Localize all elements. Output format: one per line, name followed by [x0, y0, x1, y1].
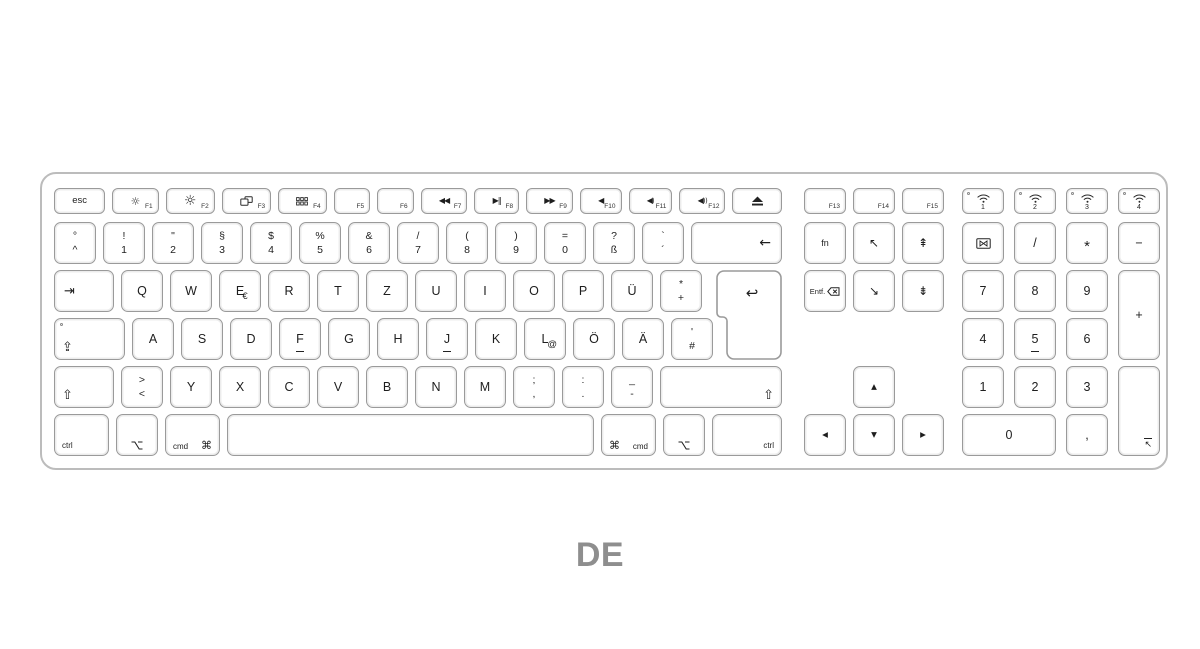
key-f13[interactable]: F13 [804, 188, 846, 214]
key-legend: D [246, 333, 255, 346]
key-caps-lock[interactable]: ⇪ [54, 318, 125, 360]
key-legend: Entf. [810, 287, 825, 296]
key-m[interactable]: M [464, 366, 506, 408]
key-num-3[interactable]: 3 [1066, 366, 1108, 408]
top-letter-row: ⇥QWE€RTZUIOPÜ*+ [54, 270, 782, 312]
key-right-ctrl[interactable]: ctrl [712, 414, 782, 456]
numpad-enter-icon: ↖ [1144, 438, 1152, 450]
key-a[interactable]: A [132, 318, 174, 360]
fkey-label: F12 [708, 203, 719, 210]
key-legend: X [236, 381, 244, 394]
key-legend: ;, [533, 375, 536, 399]
option-icon [678, 441, 690, 450]
key-end[interactable]: ↘ [853, 270, 895, 312]
key-f4[interactable]: F4 [278, 188, 326, 214]
key-num-1[interactable]: 1 [962, 366, 1004, 408]
key-legend: `´ [661, 231, 665, 255]
key-y[interactable]: Y [170, 366, 212, 408]
home-icon: ↖ [869, 237, 879, 249]
num-clear-icon [976, 238, 991, 249]
key-forward-delete[interactable]: Entf. [804, 270, 846, 312]
key-arrow-up[interactable]: ▲ [853, 366, 895, 408]
homing-bar [296, 351, 304, 352]
channel-number: 3 [1085, 204, 1089, 211]
delete-forward-icon [827, 287, 840, 296]
channel-number: 4 [1137, 204, 1141, 211]
key-z[interactable]: Z [366, 270, 408, 312]
key-legend: − [1135, 237, 1142, 250]
key-num-plus[interactable]: + [1118, 270, 1160, 360]
fkey-label: F8 [505, 203, 513, 210]
key-fn[interactable]: fn [804, 222, 846, 264]
fkey-label: F9 [559, 203, 567, 210]
key-legend: 5 [1032, 333, 1039, 346]
main-key-block: esc☼F1☼F2F3F4F5F6◀◀F7▶‖F8▶▶F9◀F10◀)F11◀)… [54, 174, 782, 472]
key-legend: Y [187, 381, 195, 394]
key-r[interactable]: R [268, 270, 310, 312]
led-indicator [1123, 192, 1126, 195]
key-angle-bracket[interactable]: >< [121, 366, 163, 408]
key-semicolon[interactable]: ;, [513, 366, 555, 408]
led-indicator [60, 323, 63, 326]
fkey-label: F3 [258, 203, 266, 210]
key-u[interactable]: U [415, 270, 457, 312]
key-wireless-2[interactable]: 2 [1014, 188, 1056, 214]
led-indicator [1071, 192, 1074, 195]
arrow-down-icon: ▼ [871, 431, 877, 439]
key-f9[interactable]: ▶▶F9 [526, 188, 573, 214]
key-colon[interactable]: :. [562, 366, 604, 408]
fkey-label: F2 [201, 203, 209, 210]
key-num-9[interactable]: 9 [1066, 270, 1108, 312]
key-legend: A [149, 333, 157, 346]
key-legend: (8 [464, 231, 470, 255]
key-legend: :. [582, 375, 585, 399]
wifi-icon [976, 193, 991, 203]
key-page-up[interactable]: ⇞ [902, 222, 944, 264]
brightness-high-icon: ☼ [184, 194, 197, 208]
key-tab[interactable]: ⇥ [54, 270, 114, 312]
end-icon: ↘ [869, 285, 879, 297]
key-legend: cmd [633, 442, 648, 451]
key-f12[interactable]: ◀))F12 [679, 188, 725, 214]
key-legend: H [393, 333, 402, 346]
key-legend: N [431, 381, 440, 394]
key-legend: >< [139, 375, 145, 399]
key-k[interactable]: K [475, 318, 517, 360]
wifi-icon [1028, 193, 1043, 203]
key-f[interactable]: F [279, 318, 321, 360]
key-num-multiply[interactable]: * [1066, 222, 1108, 264]
key-legend: /7 [415, 231, 421, 255]
key-legend: + [1135, 309, 1142, 322]
key-legend: O [529, 285, 539, 298]
key-legend: Q [137, 285, 147, 298]
key-d[interactable]: D [230, 318, 272, 360]
key-legend: G [344, 333, 354, 346]
key-legend: 2 [1032, 381, 1039, 394]
key-right-shift[interactable]: ⇧ [660, 366, 782, 408]
key-legend: ctrl [62, 441, 73, 450]
key-n[interactable]: N [415, 366, 457, 408]
key-2[interactable]: "2 [152, 222, 194, 264]
key-legend: _- [629, 375, 635, 399]
key-legend: Z [383, 285, 391, 298]
key-home[interactable]: ↖ [853, 222, 895, 264]
key-legend: M [480, 381, 490, 394]
arrow-up-icon: ▲ [871, 383, 877, 391]
key-v[interactable]: V [317, 366, 359, 408]
key-wireless-4[interactable]: 4 [1118, 188, 1160, 214]
layout-label: DE [0, 536, 1200, 575]
wifi-icon [1132, 193, 1147, 203]
key-legend: 0 [1006, 429, 1013, 442]
key-arrow-down[interactable]: ▼ [853, 414, 895, 456]
key-5[interactable]: %5 [299, 222, 341, 264]
key-num-0[interactable]: 0 [962, 414, 1056, 456]
key-legend: Ä [639, 333, 647, 346]
key-l[interactable]: L@ [524, 318, 566, 360]
brightness-low-icon: ☼ [131, 196, 141, 207]
key-f1[interactable]: ☼F1 [112, 188, 158, 214]
shift-icon: ⇧ [763, 389, 774, 402]
key-legend: %5 [315, 231, 324, 255]
key-legend: / [1033, 237, 1036, 250]
key-4[interactable]: $4 [250, 222, 292, 264]
key-8[interactable]: (8 [446, 222, 488, 264]
key-legend: * [1084, 239, 1090, 254]
key-legend: $4 [268, 231, 274, 255]
key-legend: §3 [219, 231, 225, 255]
key-page-down[interactable]: ⇟ [902, 270, 944, 312]
key-u-umlaut[interactable]: Ü [611, 270, 653, 312]
key-num-7[interactable]: 7 [962, 270, 1004, 312]
key-h[interactable]: H [377, 318, 419, 360]
key-legend: P [579, 285, 587, 298]
key-f14[interactable]: F14 [853, 188, 895, 214]
fkey-label: F15 [927, 203, 938, 210]
led-indicator [967, 192, 970, 195]
key-num-4[interactable]: 4 [962, 318, 1004, 360]
key-b[interactable]: B [366, 366, 408, 408]
key-i[interactable]: I [464, 270, 506, 312]
eject-icon [751, 196, 764, 206]
channel-number: 1 [981, 204, 985, 211]
key-legend: )9 [513, 231, 519, 255]
key-legend: , [1085, 429, 1088, 442]
key-left-ctrl[interactable]: ctrl [54, 414, 109, 456]
cmd-icon: ⌘ [201, 440, 212, 451]
key-f10[interactable]: ◀F10 [580, 188, 622, 214]
key-legend: "2 [170, 231, 176, 255]
wireless-channel-group: 1234 [962, 188, 1160, 214]
key-legend: F [296, 333, 304, 346]
key-num-5[interactable]: 5 [1014, 318, 1056, 360]
key-t[interactable]: T [317, 270, 359, 312]
key-f5[interactable]: F5 [334, 188, 370, 214]
key-right-cmd[interactable]: ⌘cmd [601, 414, 656, 456]
key-legend: !1 [121, 231, 127, 255]
key-legend: Ö [589, 333, 599, 346]
key-legend: J [444, 333, 450, 346]
launchpad-icon [296, 197, 308, 206]
key-j[interactable]: J [426, 318, 468, 360]
key-legend: C [284, 381, 293, 394]
arrow-left-icon: ◀ [822, 431, 828, 439]
secondary-legend: € [242, 291, 247, 302]
fast-forward-icon: ▶▶ [544, 197, 554, 205]
key-left-shift[interactable]: ⇧ [54, 366, 114, 408]
key-1[interactable]: !1 [103, 222, 145, 264]
key-legend: fn [821, 239, 829, 248]
home-row: ⇪ASDFGHJKL@ÖÄ'# [54, 318, 782, 360]
key-left-cmd[interactable]: cmd⌘ [165, 414, 220, 456]
f13-f15-group: F13F14F15 [804, 188, 944, 214]
key-legend: Ü [627, 285, 636, 298]
number-row: °^!1"2§3$4%5&6/7(8)9=0?ß`´← [54, 222, 782, 264]
arrow-right-icon: ▶ [920, 431, 926, 439]
key-legend: K [492, 333, 500, 346]
fkey-label: F5 [357, 203, 365, 210]
key-wireless-1[interactable]: 1 [962, 188, 1004, 214]
key-legend: W [185, 285, 197, 298]
numeric-keypad: /*−789+456123↖0, [962, 222, 1160, 456]
volume-down-icon: ◀) [647, 197, 654, 205]
key-x[interactable]: X [219, 366, 261, 408]
key-legend: R [284, 285, 293, 298]
shift-icon: ⇧ [62, 389, 73, 402]
channel-number: 2 [1033, 204, 1037, 211]
key-e[interactable]: E€ [219, 270, 261, 312]
secondary-legend: @ [547, 339, 557, 350]
key-legend: U [431, 285, 440, 298]
key-right-option[interactable] [663, 414, 705, 456]
key-esc[interactable]: esc [54, 188, 105, 214]
key-3[interactable]: §3 [201, 222, 243, 264]
modifier-row: ctrlcmd⌘⌘cmdctrl [54, 414, 782, 456]
key-legend: ctrl [763, 441, 774, 450]
key-legend: *+ [678, 279, 684, 303]
key-num-comma[interactable]: , [1066, 414, 1108, 456]
key-backspace[interactable]: ← [691, 222, 782, 264]
homing-bar [1031, 351, 1039, 352]
mission-control-icon [240, 196, 253, 206]
key-legend: 4 [980, 333, 987, 346]
key-legend: '# [689, 327, 695, 351]
key-q[interactable]: Q [121, 270, 163, 312]
key-left-option[interactable] [116, 414, 158, 456]
key-legend: cmd [173, 442, 188, 451]
caps-icon: ⇪ [62, 341, 73, 354]
page-up-icon: ⇞ [918, 237, 928, 249]
fkey-label: F13 [829, 203, 840, 210]
key-legend: B [383, 381, 391, 394]
key-num-minus[interactable]: − [1118, 222, 1160, 264]
mute-icon: ◀ [598, 197, 603, 205]
key-legend: 9 [1084, 285, 1091, 298]
key-acute[interactable]: `´ [642, 222, 684, 264]
key-c[interactable]: C [268, 366, 310, 408]
rewind-icon: ◀◀ [439, 197, 449, 205]
key-legend: 8 [1032, 285, 1039, 298]
key-p[interactable]: P [562, 270, 604, 312]
bottom-letter-row: ⇧><YXCVBNM;,:._-⇧ [54, 366, 782, 408]
option-icon [131, 441, 143, 450]
key-0[interactable]: =0 [544, 222, 586, 264]
key-f6[interactable]: F6 [377, 188, 413, 214]
fkey-label: F7 [454, 203, 462, 210]
cmd-icon: ⌘ [609, 440, 620, 451]
tab-icon: ⇥ [64, 285, 75, 298]
key-legend: °^ [73, 231, 78, 255]
fkey-label: F6 [400, 203, 408, 210]
key-legend: 6 [1084, 333, 1091, 346]
key-plus[interactable]: *+ [660, 270, 702, 312]
key-legend: esc [72, 196, 87, 206]
key-f7[interactable]: ◀◀F7 [421, 188, 468, 214]
key-f2[interactable]: ☼F2 [166, 188, 215, 214]
key-s[interactable]: S [181, 318, 223, 360]
key-legend: S [198, 333, 206, 346]
key-f3[interactable]: F3 [222, 188, 271, 214]
function-row: esc☼F1☼F2F3F4F5F6◀◀F7▶‖F8▶▶F9◀F10◀)F11◀)… [54, 188, 782, 214]
key-hash[interactable]: '# [671, 318, 713, 360]
volume-up-icon: ◀)) [698, 197, 708, 205]
fkey-label: F4 [313, 203, 321, 210]
key-wireless-3[interactable]: 3 [1066, 188, 1108, 214]
backspace-icon: ← [759, 236, 771, 250]
play-pause-icon: ▶‖ [493, 197, 501, 205]
key-num-2[interactable]: 2 [1014, 366, 1056, 408]
nav-cluster: fn↖⇞Entf.↘⇟▲◀▼▶ [804, 222, 944, 456]
fkey-label: F1 [145, 203, 153, 210]
fkey-label: F14 [878, 203, 889, 210]
homing-bar [443, 351, 451, 352]
key-legend: 7 [980, 285, 987, 298]
key-legend: =0 [562, 231, 568, 255]
key-a-umlaut[interactable]: Ä [622, 318, 664, 360]
key-num-enter[interactable]: ↖ [1118, 366, 1160, 456]
key-eszett[interactable]: ?ß [593, 222, 635, 264]
key-f15[interactable]: F15 [902, 188, 944, 214]
page-down-icon: ⇟ [918, 285, 928, 297]
key-num-8[interactable]: 8 [1014, 270, 1056, 312]
key-g[interactable]: G [328, 318, 370, 360]
key-w[interactable]: W [170, 270, 212, 312]
fkey-label: F10 [604, 203, 615, 210]
key-legend: ?ß [611, 231, 617, 255]
keyboard: esc☼F1☼F2F3F4F5F6◀◀F7▶‖F8▶▶F9◀F10◀)F11◀)… [40, 172, 1168, 470]
key-f11[interactable]: ◀)F11 [629, 188, 673, 214]
key-circumflex[interactable]: °^ [54, 222, 96, 264]
key-o[interactable]: O [513, 270, 555, 312]
key-legend: 3 [1084, 381, 1091, 394]
key-num-divide[interactable]: / [1014, 222, 1056, 264]
key-arrow-left[interactable]: ◀ [804, 414, 846, 456]
key-legend: I [483, 285, 486, 298]
key-legend: T [334, 285, 342, 298]
key-legend: &6 [365, 231, 372, 255]
key-9[interactable]: )9 [495, 222, 537, 264]
key-f8[interactable]: ▶‖F8 [474, 188, 519, 214]
fkey-label: F11 [656, 203, 667, 210]
led-indicator [1019, 192, 1022, 195]
key-num-6[interactable]: 6 [1066, 318, 1108, 360]
key-eject[interactable] [732, 188, 781, 214]
key-legend: 1 [980, 381, 987, 394]
key-arrow-right[interactable]: ▶ [902, 414, 944, 456]
key-legend: V [334, 381, 342, 394]
key-6[interactable]: &6 [348, 222, 390, 264]
key-num-clear[interactable] [962, 222, 1004, 264]
key-7[interactable]: /7 [397, 222, 439, 264]
key-space[interactable] [227, 414, 594, 456]
wifi-icon [1080, 193, 1095, 203]
key-underscore[interactable]: _- [611, 366, 653, 408]
key-o-umlaut[interactable]: Ö [573, 318, 615, 360]
